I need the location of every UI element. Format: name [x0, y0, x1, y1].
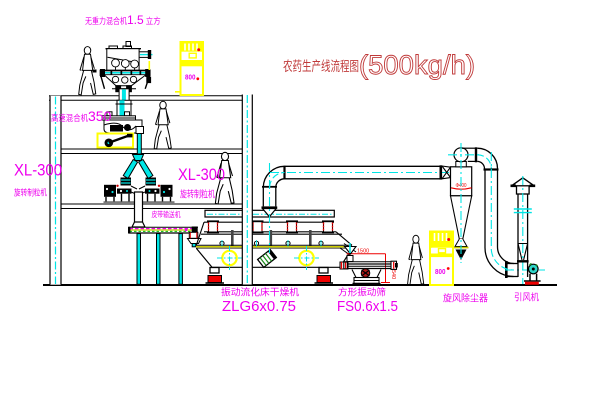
svg-text:振动流化床干燥机: 振动流化床干燥机: [221, 287, 299, 299]
svg-text:XL-300: XL-300: [14, 162, 62, 180]
svg-text:540: 540: [390, 270, 396, 279]
svg-text:农药生产线流程图: 农药生产线流程图: [283, 59, 359, 74]
svg-text:旋转制粒机: 旋转制粒机: [180, 189, 215, 201]
svg-text:ZLG6x0.75: ZLG6x0.75: [222, 298, 296, 315]
svg-text:(500kg/h): (500kg/h): [359, 50, 475, 80]
svg-text:无重力混合机1.5 立方: 无重力混合机1.5 立方: [85, 13, 161, 27]
svg-text:旋转制粒机: 旋转制粒机: [14, 187, 47, 198]
svg-text:皮带输送机: 皮带输送机: [152, 209, 181, 219]
svg-text:旋风除尘器: 旋风除尘器: [443, 293, 488, 305]
svg-text:方形振动筛: 方形振动筛: [338, 287, 386, 299]
svg-text:FS0.6x1.5: FS0.6x1.5: [337, 298, 398, 315]
svg-text:800: 800: [185, 73, 196, 82]
svg-text:XL-300: XL-300: [178, 166, 225, 184]
svg-text:800: 800: [435, 267, 446, 276]
svg-text:1500: 1500: [357, 249, 369, 255]
svg-text:引风机: 引风机: [514, 292, 539, 304]
